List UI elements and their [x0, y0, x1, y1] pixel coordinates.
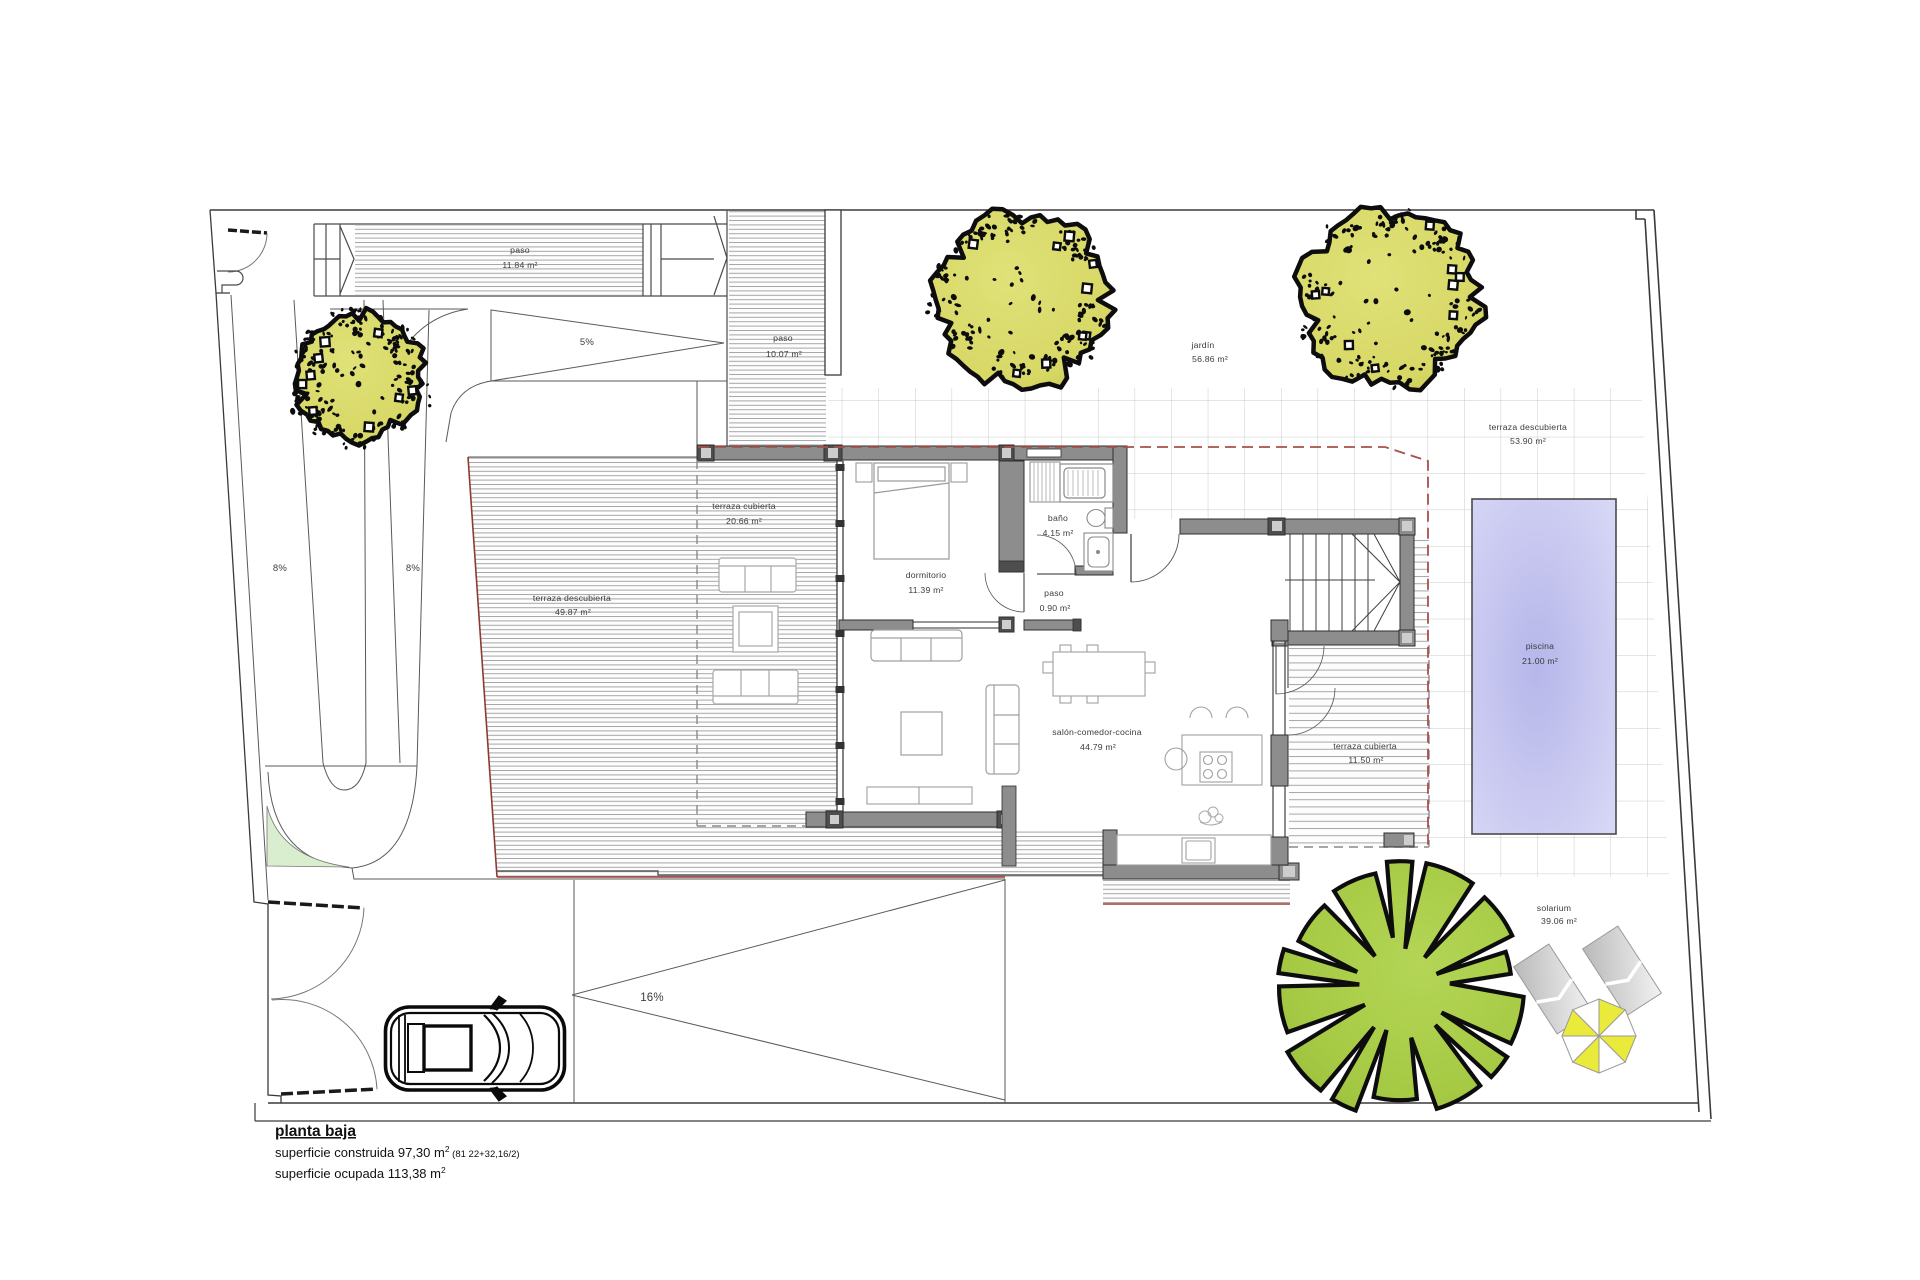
svg-text:jardín: jardín: [1191, 340, 1215, 350]
svg-text:5%: 5%: [580, 337, 594, 348]
svg-text:planta baja: planta baja: [275, 1123, 356, 1140]
svg-text:terraza descubierta: terraza descubierta: [1489, 422, 1567, 432]
svg-text:paso: paso: [773, 333, 793, 343]
svg-text:dormitorio: dormitorio: [906, 570, 947, 580]
svg-text:39.06 m²: 39.06 m²: [1541, 916, 1577, 926]
svg-text:56.86 m²: 56.86 m²: [1192, 354, 1228, 364]
svg-text:piscina: piscina: [1526, 641, 1554, 651]
svg-text:salón-comedor-cocina: salón-comedor-cocina: [1052, 727, 1141, 737]
svg-text:11.39 m²: 11.39 m²: [908, 585, 943, 595]
svg-text:terraza cubierta: terraza cubierta: [712, 501, 776, 511]
svg-text:solarium: solarium: [1537, 903, 1571, 913]
svg-text:8%: 8%: [273, 563, 287, 574]
svg-text:10.07 m²: 10.07 m²: [766, 349, 802, 359]
svg-text:baño: baño: [1048, 513, 1068, 523]
svg-text:21.00 m²: 21.00 m²: [1522, 656, 1558, 666]
svg-text:superficie ocupada 113,38 m2: superficie ocupada 113,38 m2: [275, 1165, 446, 1181]
svg-text:paso: paso: [1044, 588, 1064, 598]
svg-text:53.90 m²: 53.90 m²: [1510, 436, 1546, 446]
svg-text:paso: paso: [510, 245, 530, 255]
svg-text:16%: 16%: [640, 992, 664, 1004]
svg-text:44.79 m²: 44.79 m²: [1080, 742, 1116, 752]
svg-text:8%: 8%: [406, 563, 420, 574]
svg-text:20.66 m²: 20.66 m²: [726, 516, 762, 526]
svg-text:11.84 m²: 11.84 m²: [502, 260, 537, 270]
svg-text:11.50 m²: 11.50 m²: [1348, 755, 1383, 765]
svg-text:terraza cubierta: terraza cubierta: [1333, 741, 1397, 751]
svg-text:49.87 m²: 49.87 m²: [555, 607, 591, 617]
svg-text:0.90 m²: 0.90 m²: [1040, 603, 1071, 613]
svg-text:4.15 m²: 4.15 m²: [1043, 528, 1074, 538]
svg-text:terraza descubierta: terraza descubierta: [533, 593, 611, 603]
